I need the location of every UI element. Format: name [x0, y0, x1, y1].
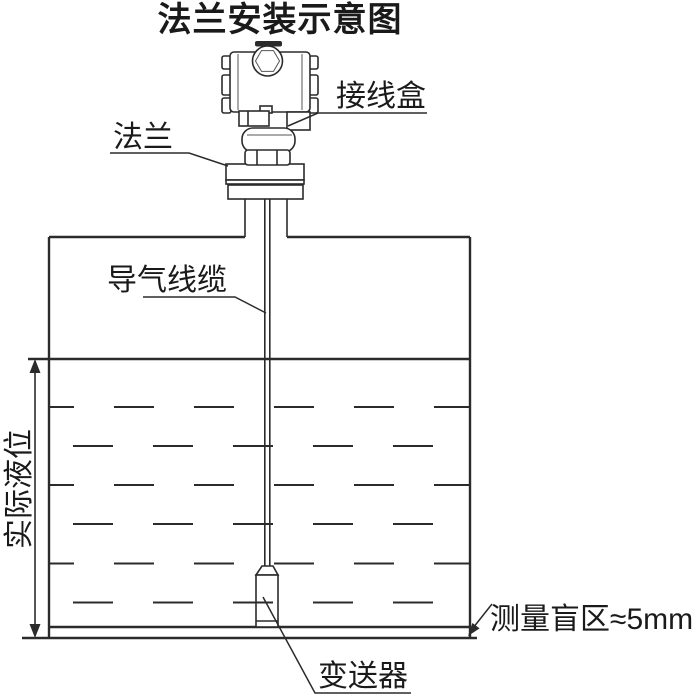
flange-label: 法兰	[113, 121, 173, 154]
air-guide-cable	[265, 185, 270, 566]
dimension-arrow-up	[30, 359, 41, 373]
diagram-title: 法兰安装示意图	[158, 1, 403, 39]
transmitter-label: 变送器	[318, 660, 408, 693]
flange-installation-diagram: 法兰安装示意图 接线盒 法兰 导气线缆 实际液位 变送器 测量盲区≈5mm	[0, 0, 700, 700]
probe-taper	[256, 566, 278, 575]
air-cable-leader	[143, 297, 266, 313]
flange-gasket	[226, 180, 304, 184]
flange-plate	[226, 164, 304, 180]
hex-nut	[245, 150, 290, 165]
air-cable-label: 导气线缆	[107, 264, 227, 297]
leader-lines	[110, 113, 492, 693]
flange-leader	[110, 153, 228, 166]
junction-box-label: 接线盒	[336, 80, 426, 113]
nozzle-flange-plate	[228, 185, 303, 199]
blind-zone-label: 测量盲区≈5mm	[490, 603, 693, 636]
actual-level-label: 实际液位	[3, 429, 36, 549]
terminal-block	[239, 111, 269, 126]
junction-box-head	[222, 41, 318, 165]
diagram-container: 法兰安装示意图 接线盒 法兰 导气线缆 实际液位 变送器 测量盲区≈5mm	[0, 0, 700, 700]
neck-coupling	[242, 128, 295, 152]
dimension-arrow-down	[30, 624, 41, 638]
flange-assembly	[226, 164, 304, 184]
tank	[22, 237, 477, 638]
top-cap-bar	[255, 41, 282, 47]
